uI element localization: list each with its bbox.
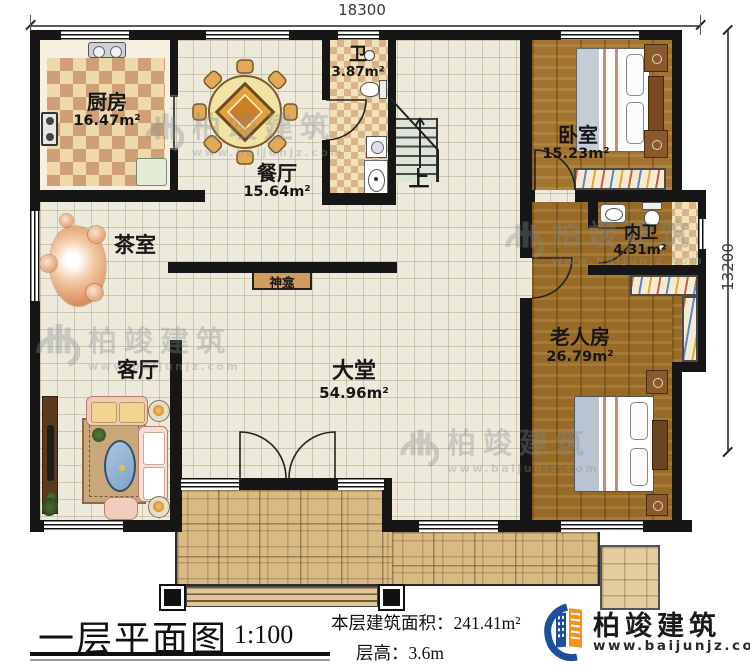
toilet-tank (379, 80, 387, 99)
room-area-kitchen: 16.47m² (62, 113, 152, 129)
wall (672, 362, 682, 532)
tv-icon (47, 425, 54, 481)
company-website: www.baijunjz.com (593, 638, 750, 654)
coffee-table (104, 440, 136, 492)
room-label-living: 客厅 (106, 359, 170, 381)
room-label-ensuite: 内卫 (612, 225, 670, 243)
headboard (652, 420, 668, 470)
floor-height-label: 层高： (356, 643, 409, 663)
dimension-height-label: 13200 (719, 235, 737, 299)
company-logo: 柏竣建筑 www.baijunjz.com (543, 600, 743, 666)
sofa (86, 396, 148, 426)
pillow (630, 448, 648, 486)
window (560, 30, 640, 40)
room-label-elder: 老人房 (536, 327, 624, 348)
wall (322, 40, 330, 100)
dimension-width-line (30, 25, 700, 27)
room-area-bath: 3.87m² (330, 64, 386, 80)
room-label-bath: 卫 (340, 46, 376, 65)
room-area-hall: 54.96m² (312, 384, 396, 402)
toilet-icon (360, 82, 379, 97)
wall (170, 40, 178, 95)
shrine: 神龛 (252, 270, 312, 290)
tea-stool (60, 214, 73, 227)
pillow (630, 402, 648, 440)
wall (672, 30, 682, 202)
wall (520, 298, 532, 520)
room-label-bedroom: 卧室 (546, 125, 610, 146)
wall (588, 265, 706, 275)
room-label-dining: 餐厅 (246, 163, 308, 184)
floor-height-value: 3.6m (409, 643, 445, 663)
floor-height-line: 层高：3.6m (356, 640, 444, 665)
wall (170, 150, 178, 195)
washing-machine (366, 136, 387, 158)
pillow (626, 54, 644, 96)
nightstand (646, 370, 668, 394)
fridge (136, 158, 167, 186)
floor-area-line: 本层建筑面积：241.41m² (331, 610, 520, 635)
floor-area-value: 241.41m² (454, 613, 521, 633)
kitchen-sink (88, 42, 126, 58)
nightstand (644, 44, 668, 72)
wall (520, 40, 532, 202)
room-area-bedroom: 15.23m² (538, 146, 614, 162)
side-table (148, 400, 170, 422)
porch-column (159, 584, 186, 611)
dimension-ext (700, 15, 701, 35)
ottoman (104, 497, 138, 520)
tea-stool (86, 284, 103, 301)
wall (672, 362, 706, 372)
title-underline (30, 652, 330, 656)
room-area-ensuite: 4.31m² (608, 242, 672, 258)
porch (392, 532, 600, 586)
window (418, 520, 499, 532)
wall (520, 202, 532, 258)
wall (322, 193, 396, 205)
window (60, 30, 130, 40)
nightstand (644, 130, 668, 158)
window (43, 520, 124, 532)
pillow (626, 102, 644, 144)
window (205, 30, 290, 40)
window (337, 478, 385, 490)
headboard (648, 76, 664, 134)
porch-steps (186, 586, 378, 607)
shrine-label: 神龛 (269, 275, 294, 290)
porch (175, 490, 392, 586)
tv-cabinet (42, 396, 58, 514)
porch-column (378, 584, 405, 611)
window (180, 478, 240, 490)
closet (630, 275, 698, 296)
room-area-dining: 15.64m² (242, 184, 312, 200)
floor-plan-canvas: 18300 13200 (0, 0, 750, 670)
window (30, 210, 40, 302)
title-underline-thin (30, 659, 330, 661)
wall (322, 140, 330, 195)
palm-plant-icon (92, 428, 106, 442)
plan-scale: 1:100 (234, 620, 293, 650)
wall (168, 262, 397, 273)
stove-icon (41, 112, 58, 146)
closet (682, 296, 698, 362)
ensuite-toilet (642, 202, 662, 210)
wall (588, 202, 598, 228)
wall (30, 190, 205, 202)
room-label-tea: 茶室 (103, 234, 167, 256)
window (560, 520, 644, 532)
nightstand (646, 494, 668, 516)
room-label-kitchen: 厨房 (72, 92, 142, 113)
wall (388, 40, 396, 205)
window (337, 30, 380, 40)
room-area-elder: 26.79m² (540, 349, 620, 365)
sofa (138, 426, 168, 502)
stairs-up-label: 上 (404, 168, 434, 190)
wardrobe (574, 168, 666, 190)
dining-table (192, 59, 298, 165)
dimension-width-label: 18300 (330, 1, 394, 19)
tea-stool (40, 255, 57, 272)
floor-area-label: 本层建筑面积： (331, 613, 454, 633)
side-table (148, 496, 170, 518)
wall (170, 340, 182, 520)
window (698, 218, 706, 250)
ensuite-sink (600, 204, 626, 223)
room-label-hall: 大堂 (316, 360, 392, 383)
company-logo-icon (543, 601, 589, 663)
